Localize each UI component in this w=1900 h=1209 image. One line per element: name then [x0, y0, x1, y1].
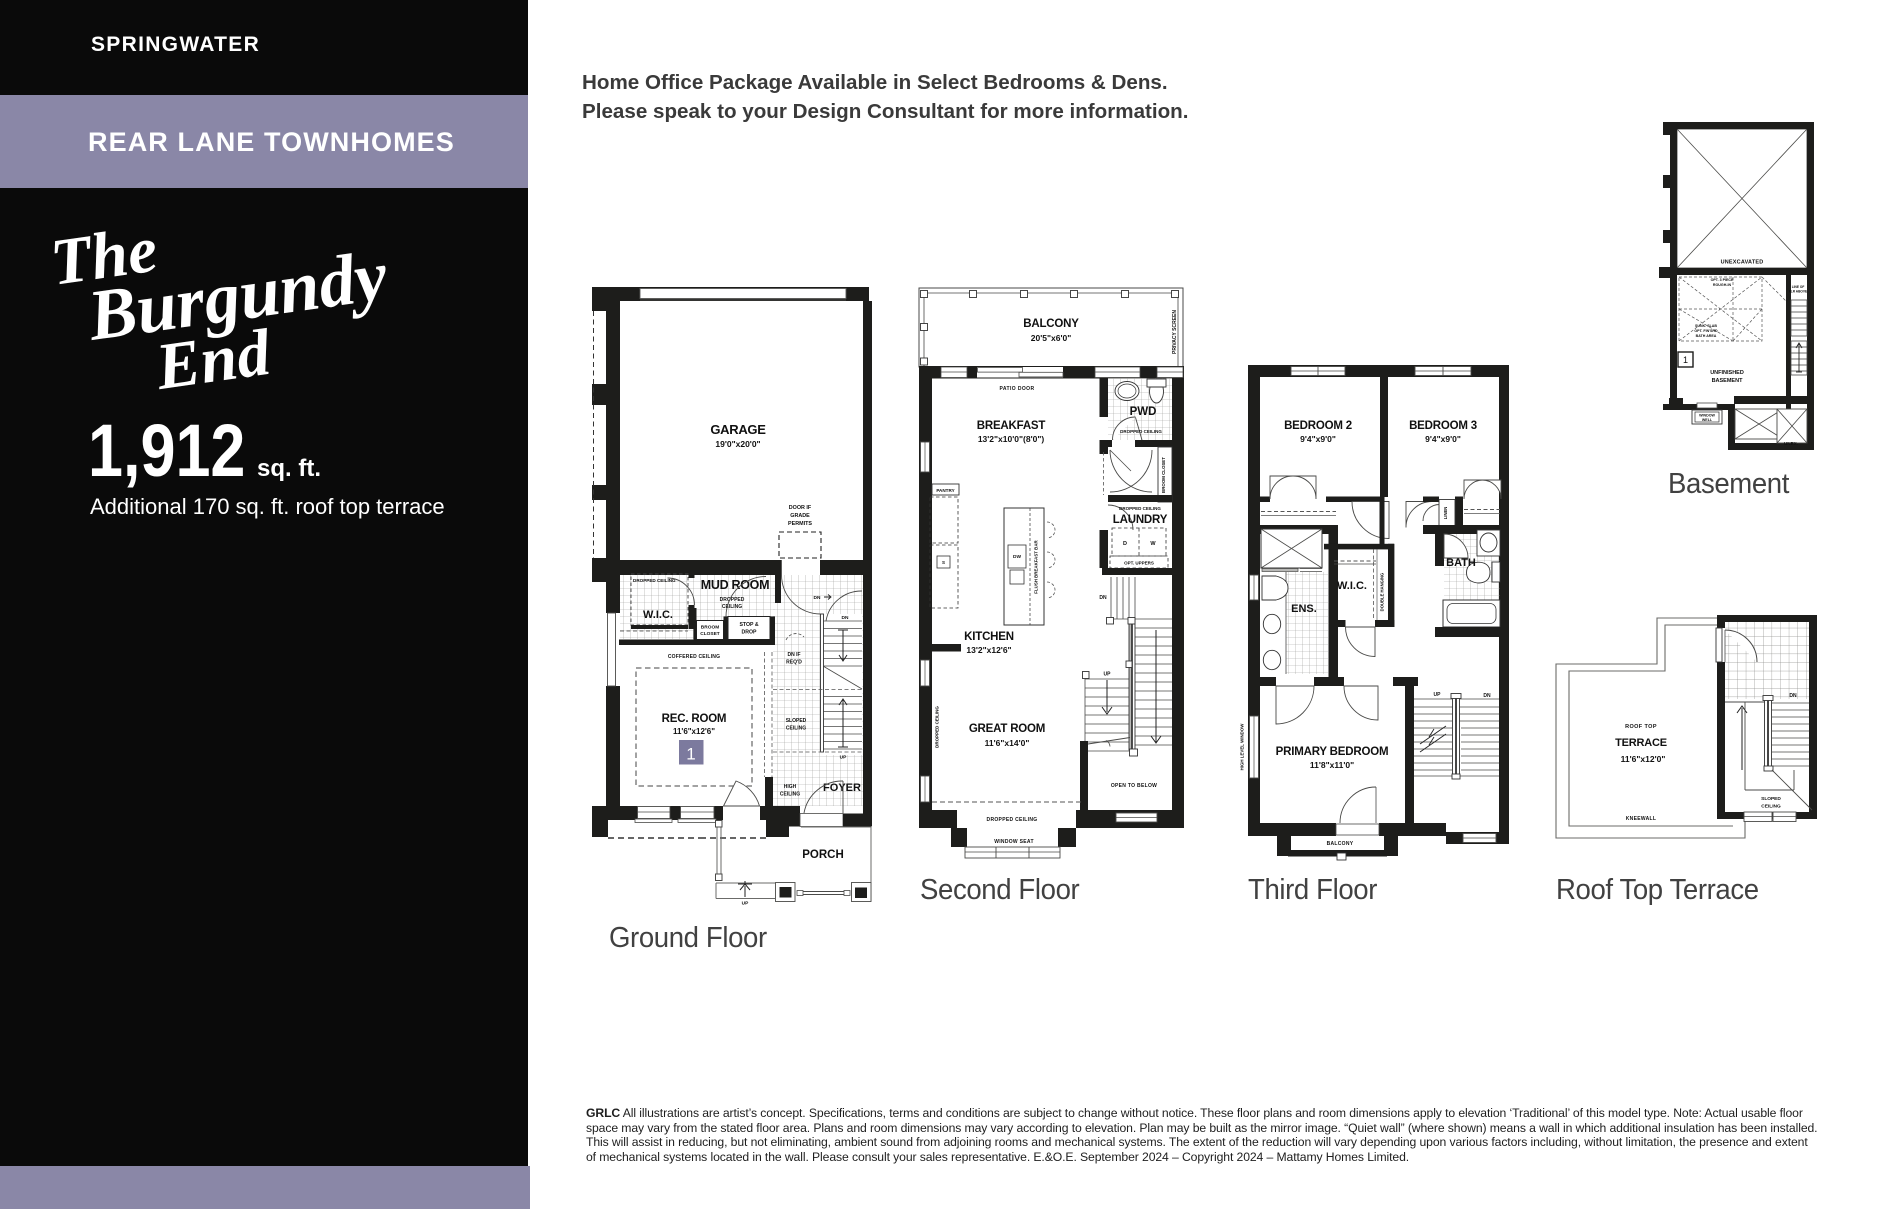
svg-text:UNEXCAVATED: UNEXCAVATED	[1721, 260, 1764, 266]
svg-text:PRIMARY BEDROOM: PRIMARY BEDROOM	[1276, 746, 1389, 758]
svg-text:DOUBLE HANGING: DOUBLE HANGING	[1380, 573, 1385, 612]
svg-text:ENS.: ENS.	[1291, 603, 1317, 615]
svg-text:HIGH: HIGH	[784, 784, 797, 790]
svg-text:WINDOW SEAT: WINDOW SEAT	[994, 839, 1034, 845]
svg-text:PERMITS: PERMITS	[788, 521, 812, 527]
svg-text:PRIVACY SCREEN: PRIVACY SCREEN	[1172, 310, 1178, 354]
svg-text:13'2"x10'0"(8'0"): 13'2"x10'0"(8'0")	[978, 434, 1045, 444]
svg-text:DOOR IF: DOOR IF	[789, 505, 812, 511]
svg-text:SLOPED: SLOPED	[1761, 796, 1781, 802]
svg-text:9'4"x9'0": 9'4"x9'0"	[1425, 434, 1461, 444]
svg-text:20'5"x6'0": 20'5"x6'0"	[1031, 333, 1071, 343]
svg-text:DROPPED CEILING: DROPPED CEILING	[633, 578, 676, 583]
svg-text:FLUSH BREAKFAST BAR: FLUSH BREAKFAST BAR	[1034, 539, 1039, 593]
svg-text:DN: DN	[1099, 595, 1107, 601]
svg-text:KITCHEN: KITCHEN	[964, 631, 1014, 643]
svg-text:W.I.C.: W.I.C.	[1337, 580, 1367, 592]
svg-text:BATH: BATH	[1446, 557, 1476, 569]
svg-text:GRADE: GRADE	[790, 513, 810, 519]
svg-text:DROPPED CEILING: DROPPED CEILING	[935, 706, 940, 748]
svg-text:FLR ABOVE: FLR ABOVE	[1789, 290, 1807, 294]
svg-text:DROP: DROP	[742, 630, 758, 636]
svg-text:CEILING: CEILING	[722, 604, 742, 610]
svg-text:BEDROOM 3: BEDROOM 3	[1409, 420, 1477, 432]
svg-text:UP: UP	[1104, 672, 1112, 678]
svg-text:BROOM CLOSET: BROOM CLOSET	[1161, 457, 1166, 493]
svg-text:1: 1	[1683, 355, 1688, 365]
svg-text:STOP &: STOP &	[739, 622, 758, 628]
svg-text:UP: UP	[1434, 692, 1442, 698]
svg-text:GREAT ROOM: GREAT ROOM	[969, 723, 1045, 735]
svg-text:ROUGH-IN: ROUGH-IN	[1713, 283, 1732, 287]
svg-text:DN: DN	[814, 595, 821, 601]
svg-text:SUNK. SLAB: SUNK. SLAB	[1695, 324, 1717, 328]
svg-text:WINDOW: WINDOW	[1699, 414, 1715, 418]
svg-text:DN: DN	[1483, 693, 1491, 699]
svg-text:UP: UP	[840, 755, 847, 761]
svg-text:OPT. FIN'SHD: OPT. FIN'SHD	[1694, 329, 1718, 333]
svg-text:1: 1	[686, 745, 695, 764]
svg-text:ROOF TOP: ROOF TOP	[1625, 724, 1657, 730]
svg-text:OPEN TO BELOW: OPEN TO BELOW	[1111, 783, 1157, 789]
svg-text:TERRACE: TERRACE	[1615, 737, 1667, 749]
svg-text:OPT. UPPERS: OPT. UPPERS	[1124, 561, 1154, 566]
svg-text:BALCONY: BALCONY	[1327, 841, 1354, 847]
svg-text:UNEX.: UNEX.	[1784, 441, 1798, 446]
svg-text:W: W	[1150, 541, 1156, 547]
svg-text:HIGH LEVEL WINDOW: HIGH LEVEL WINDOW	[1240, 723, 1245, 771]
svg-text:DW: DW	[1013, 554, 1021, 560]
svg-text:CEILING: CEILING	[780, 792, 800, 798]
svg-text:DROPPED: DROPPED	[720, 597, 745, 603]
svg-text:BEDROOM 2: BEDROOM 2	[1284, 420, 1352, 432]
svg-text:DN IF: DN IF	[787, 652, 800, 658]
svg-text:11'8"x11'0": 11'8"x11'0"	[1310, 760, 1354, 770]
svg-text:BROOM: BROOM	[701, 625, 719, 631]
svg-text:PWD: PWD	[1130, 406, 1157, 418]
svg-text:DROPPED CEILING: DROPPED CEILING	[1120, 429, 1162, 434]
svg-text:13'2"x12'6": 13'2"x12'6"	[966, 645, 1011, 655]
svg-text:LINEN: LINEN	[1443, 507, 1448, 520]
svg-text:11'6"x12'6": 11'6"x12'6"	[673, 727, 715, 736]
svg-text:PORCH: PORCH	[802, 849, 844, 861]
svg-text:PATIO DOOR: PATIO DOOR	[1000, 386, 1035, 392]
svg-text:DROPPED CEILING: DROPPED CEILING	[987, 817, 1038, 823]
svg-text:S: S	[942, 560, 945, 565]
svg-text:BATH AREA: BATH AREA	[1696, 334, 1717, 338]
svg-text:11'6"x14'0": 11'6"x14'0"	[985, 738, 1030, 748]
svg-text:LINE OF: LINE OF	[1792, 285, 1805, 289]
svg-text:UP: UP	[742, 901, 749, 907]
svg-text:WELL: WELL	[1702, 418, 1713, 422]
svg-text:D: D	[1123, 541, 1127, 547]
svg-text:COFFERED CEILING: COFFERED CEILING	[668, 654, 720, 660]
svg-text:OPT. 3 PIECE: OPT. 3 PIECE	[1711, 278, 1734, 282]
svg-text:CEILING: CEILING	[1761, 804, 1781, 810]
svg-text:19'0"x20'0": 19'0"x20'0"	[715, 439, 760, 449]
svg-text:MUD ROOM: MUD ROOM	[701, 578, 769, 592]
svg-text:REC. ROOM: REC. ROOM	[662, 713, 727, 725]
svg-text:9'4"x9'0": 9'4"x9'0"	[1300, 434, 1336, 444]
svg-text:SLOPED: SLOPED	[786, 718, 807, 724]
svg-text:UNFINISHED: UNFINISHED	[1710, 370, 1744, 376]
svg-text:CEILING: CEILING	[786, 726, 806, 732]
svg-text:W.I.C.: W.I.C.	[643, 609, 673, 621]
svg-text:11'6"x12'0": 11'6"x12'0"	[1621, 754, 1666, 764]
svg-text:PANTRY: PANTRY	[936, 488, 954, 493]
svg-text:CLOSET: CLOSET	[700, 631, 720, 637]
svg-text:DN: DN	[842, 615, 849, 621]
svg-text:KNEEWALL: KNEEWALL	[1626, 816, 1656, 822]
svg-text:LAUNDRY: LAUNDRY	[1113, 514, 1168, 526]
svg-text:GARAGE: GARAGE	[710, 422, 766, 437]
svg-text:REQ'D: REQ'D	[786, 660, 802, 666]
svg-text:BASEMENT: BASEMENT	[1712, 378, 1744, 384]
svg-text:DROPPED CEILING: DROPPED CEILING	[1119, 506, 1161, 511]
svg-text:BREAKFAST: BREAKFAST	[977, 420, 1046, 432]
svg-text:DN: DN	[1789, 693, 1797, 699]
svg-text:BALCONY: BALCONY	[1023, 318, 1079, 330]
